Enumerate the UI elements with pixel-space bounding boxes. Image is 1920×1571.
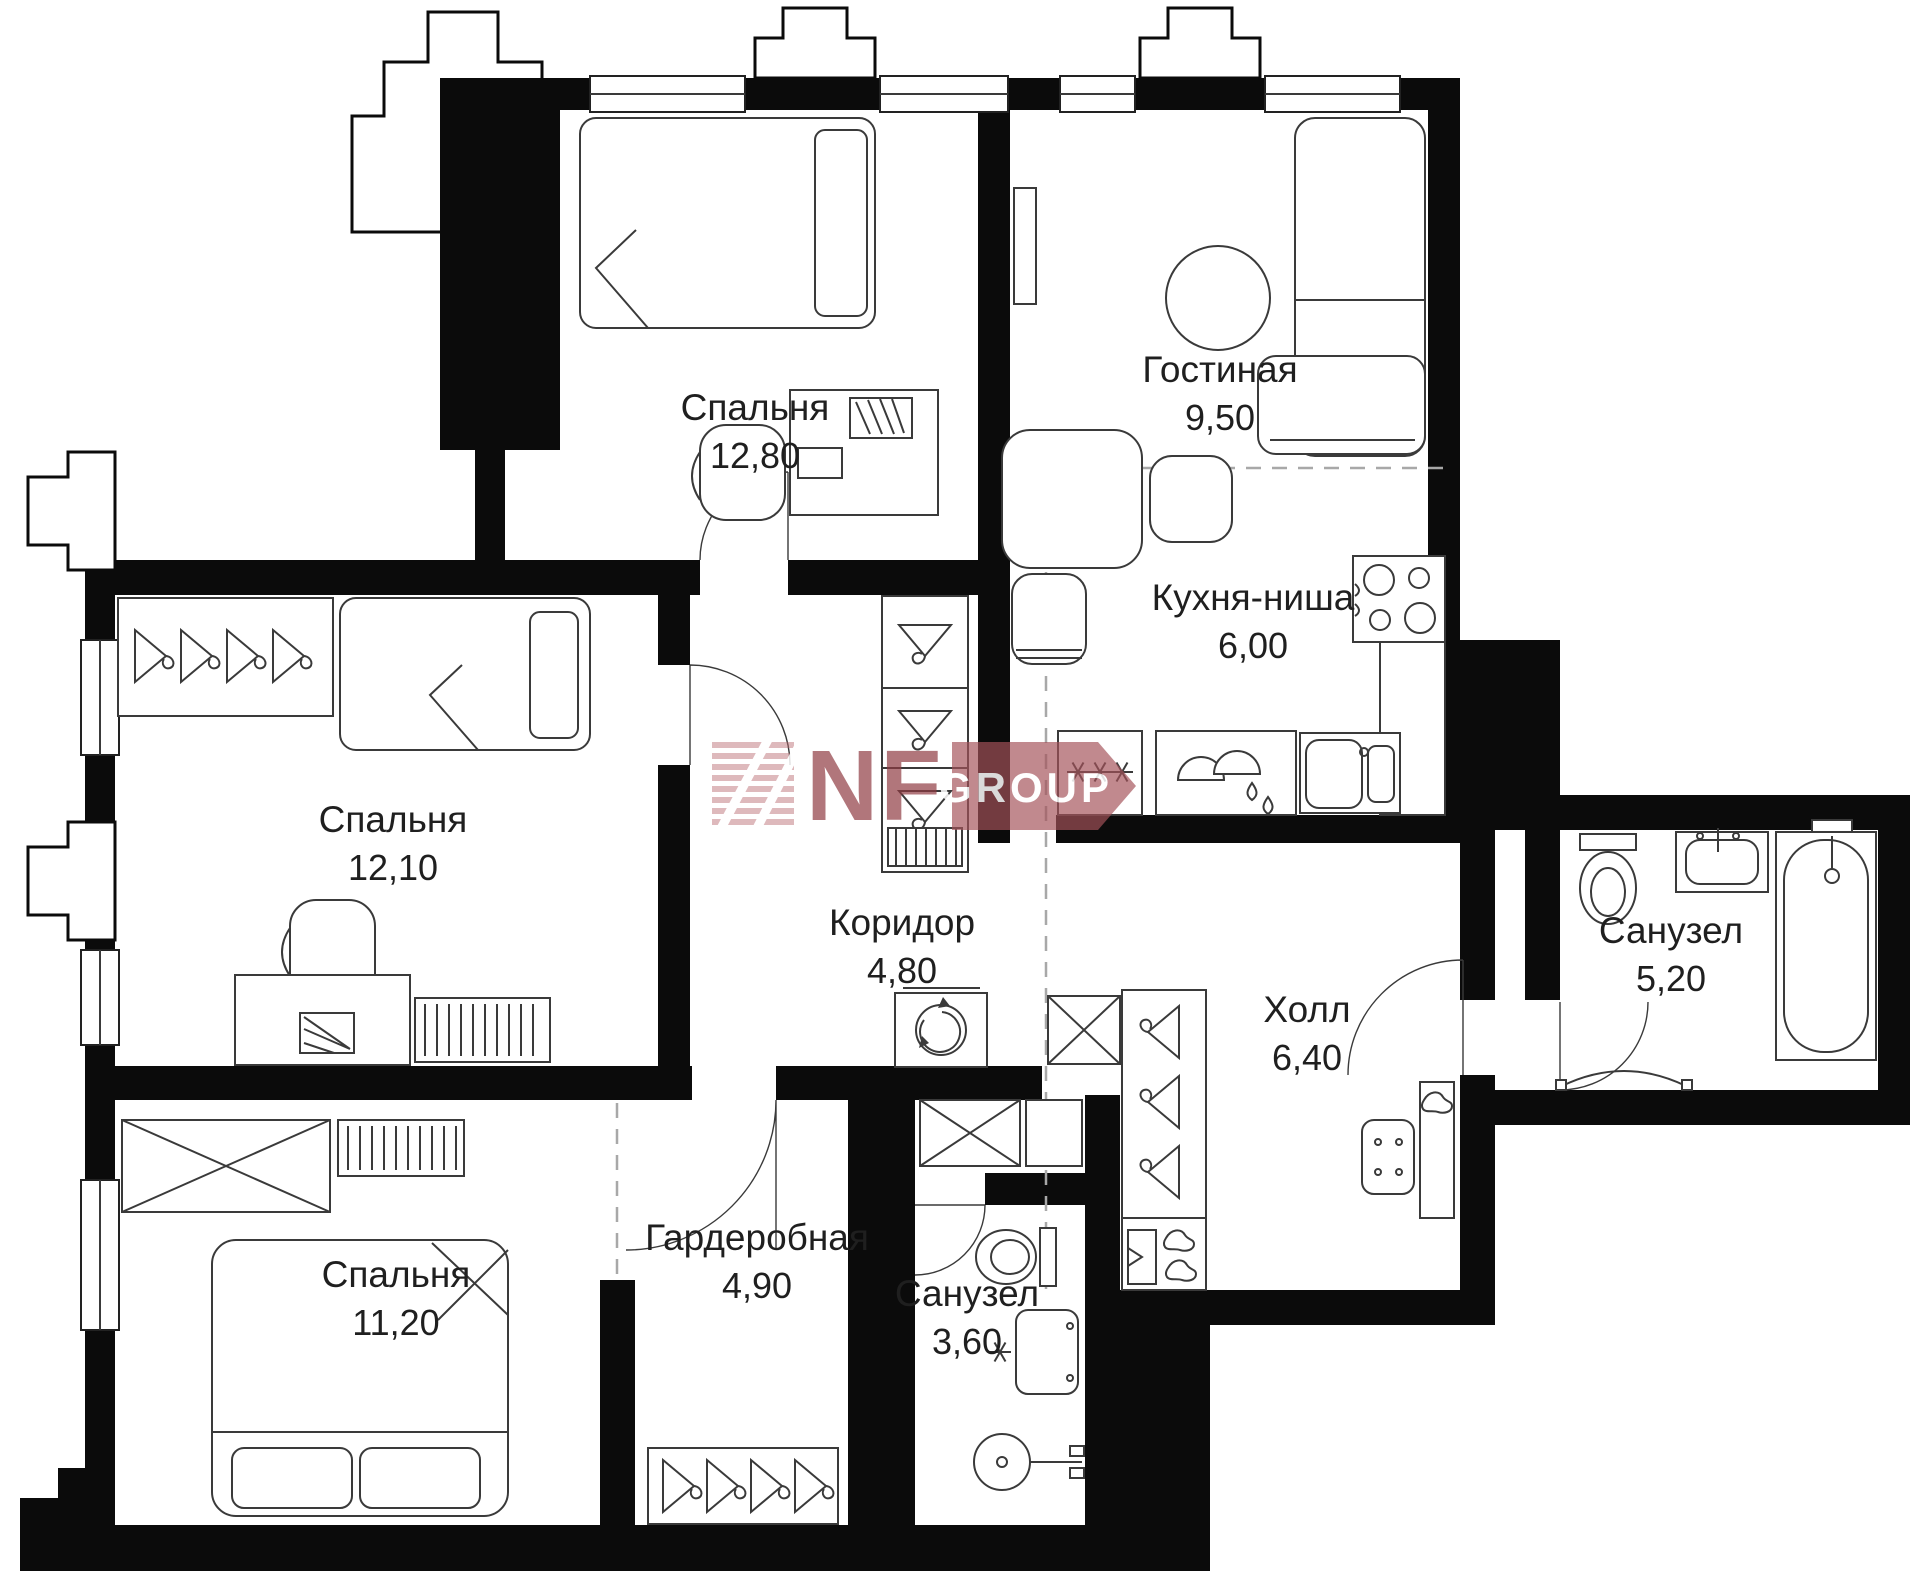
watermark-brand: NF: [806, 730, 943, 842]
svg-text:4,80: 4,80: [867, 950, 937, 991]
window: [880, 76, 1008, 112]
svg-text:Гардеробная: Гардеробная: [645, 1217, 869, 1258]
svg-text:9,50: 9,50: [1185, 397, 1255, 438]
bed-single-1: [580, 118, 875, 328]
hall-stool: [1362, 1120, 1414, 1194]
tv-panel: [1014, 188, 1036, 304]
svg-text:Спальня: Спальня: [322, 1254, 471, 1295]
floor-plan: NF GROUP Спальня 12,80 Гостиная 9,50 Кух…: [0, 0, 1920, 1571]
window: [81, 640, 119, 755]
cabinet-x-1: [1048, 996, 1120, 1064]
shelf-radiator: [338, 1120, 464, 1176]
watermark-suffix: GROUP: [939, 764, 1113, 811]
svg-text:4,90: 4,90: [722, 1265, 792, 1306]
bathtub: [1776, 820, 1876, 1060]
wardrobe-open-2: [648, 1448, 838, 1524]
round-table: [1166, 246, 1270, 350]
washing-machine: [895, 988, 987, 1067]
svg-text:Гостиная: Гостиная: [1142, 349, 1297, 390]
hall-closet: [1122, 990, 1206, 1290]
floor-plan-drawing: NF GROUP Спальня 12,80 Гостиная 9,50 Кух…: [0, 0, 1920, 1571]
svg-text:5,20: 5,20: [1636, 958, 1706, 999]
window: [590, 76, 745, 112]
svg-text:Коридор: Коридор: [829, 902, 975, 943]
svg-text:Холл: Холл: [1263, 989, 1350, 1030]
svg-text:6,40: 6,40: [1272, 1037, 1342, 1078]
svg-text:Спальня: Спальня: [319, 799, 468, 840]
svg-text:12,10: 12,10: [348, 847, 438, 888]
window: [81, 950, 119, 1045]
window: [1060, 76, 1135, 112]
svg-text:11,20: 11,20: [352, 1302, 439, 1343]
svg-text:3,60: 3,60: [932, 1321, 1002, 1362]
window: [81, 1180, 119, 1330]
svg-text:Спальня: Спальня: [681, 387, 830, 428]
svg-text:12,80: 12,80: [710, 435, 800, 476]
svg-text:Санузел: Санузел: [1599, 910, 1743, 951]
hall-shoe-cabinet: [1420, 1082, 1454, 1218]
cabinet-x-3: [122, 1120, 330, 1212]
cabinet-x-2: [920, 1100, 1020, 1166]
svg-text:Кухня-ниша: Кухня-ниша: [1152, 577, 1355, 618]
wardrobe-open-1: [118, 598, 333, 716]
window: [1265, 76, 1400, 112]
svg-text:6,00: 6,00: [1218, 625, 1288, 666]
bed-single-2: [340, 598, 590, 750]
svg-text:Санузел: Санузел: [895, 1273, 1039, 1314]
sink-1: [1676, 828, 1768, 892]
cabinet-plain: [1026, 1100, 1082, 1166]
